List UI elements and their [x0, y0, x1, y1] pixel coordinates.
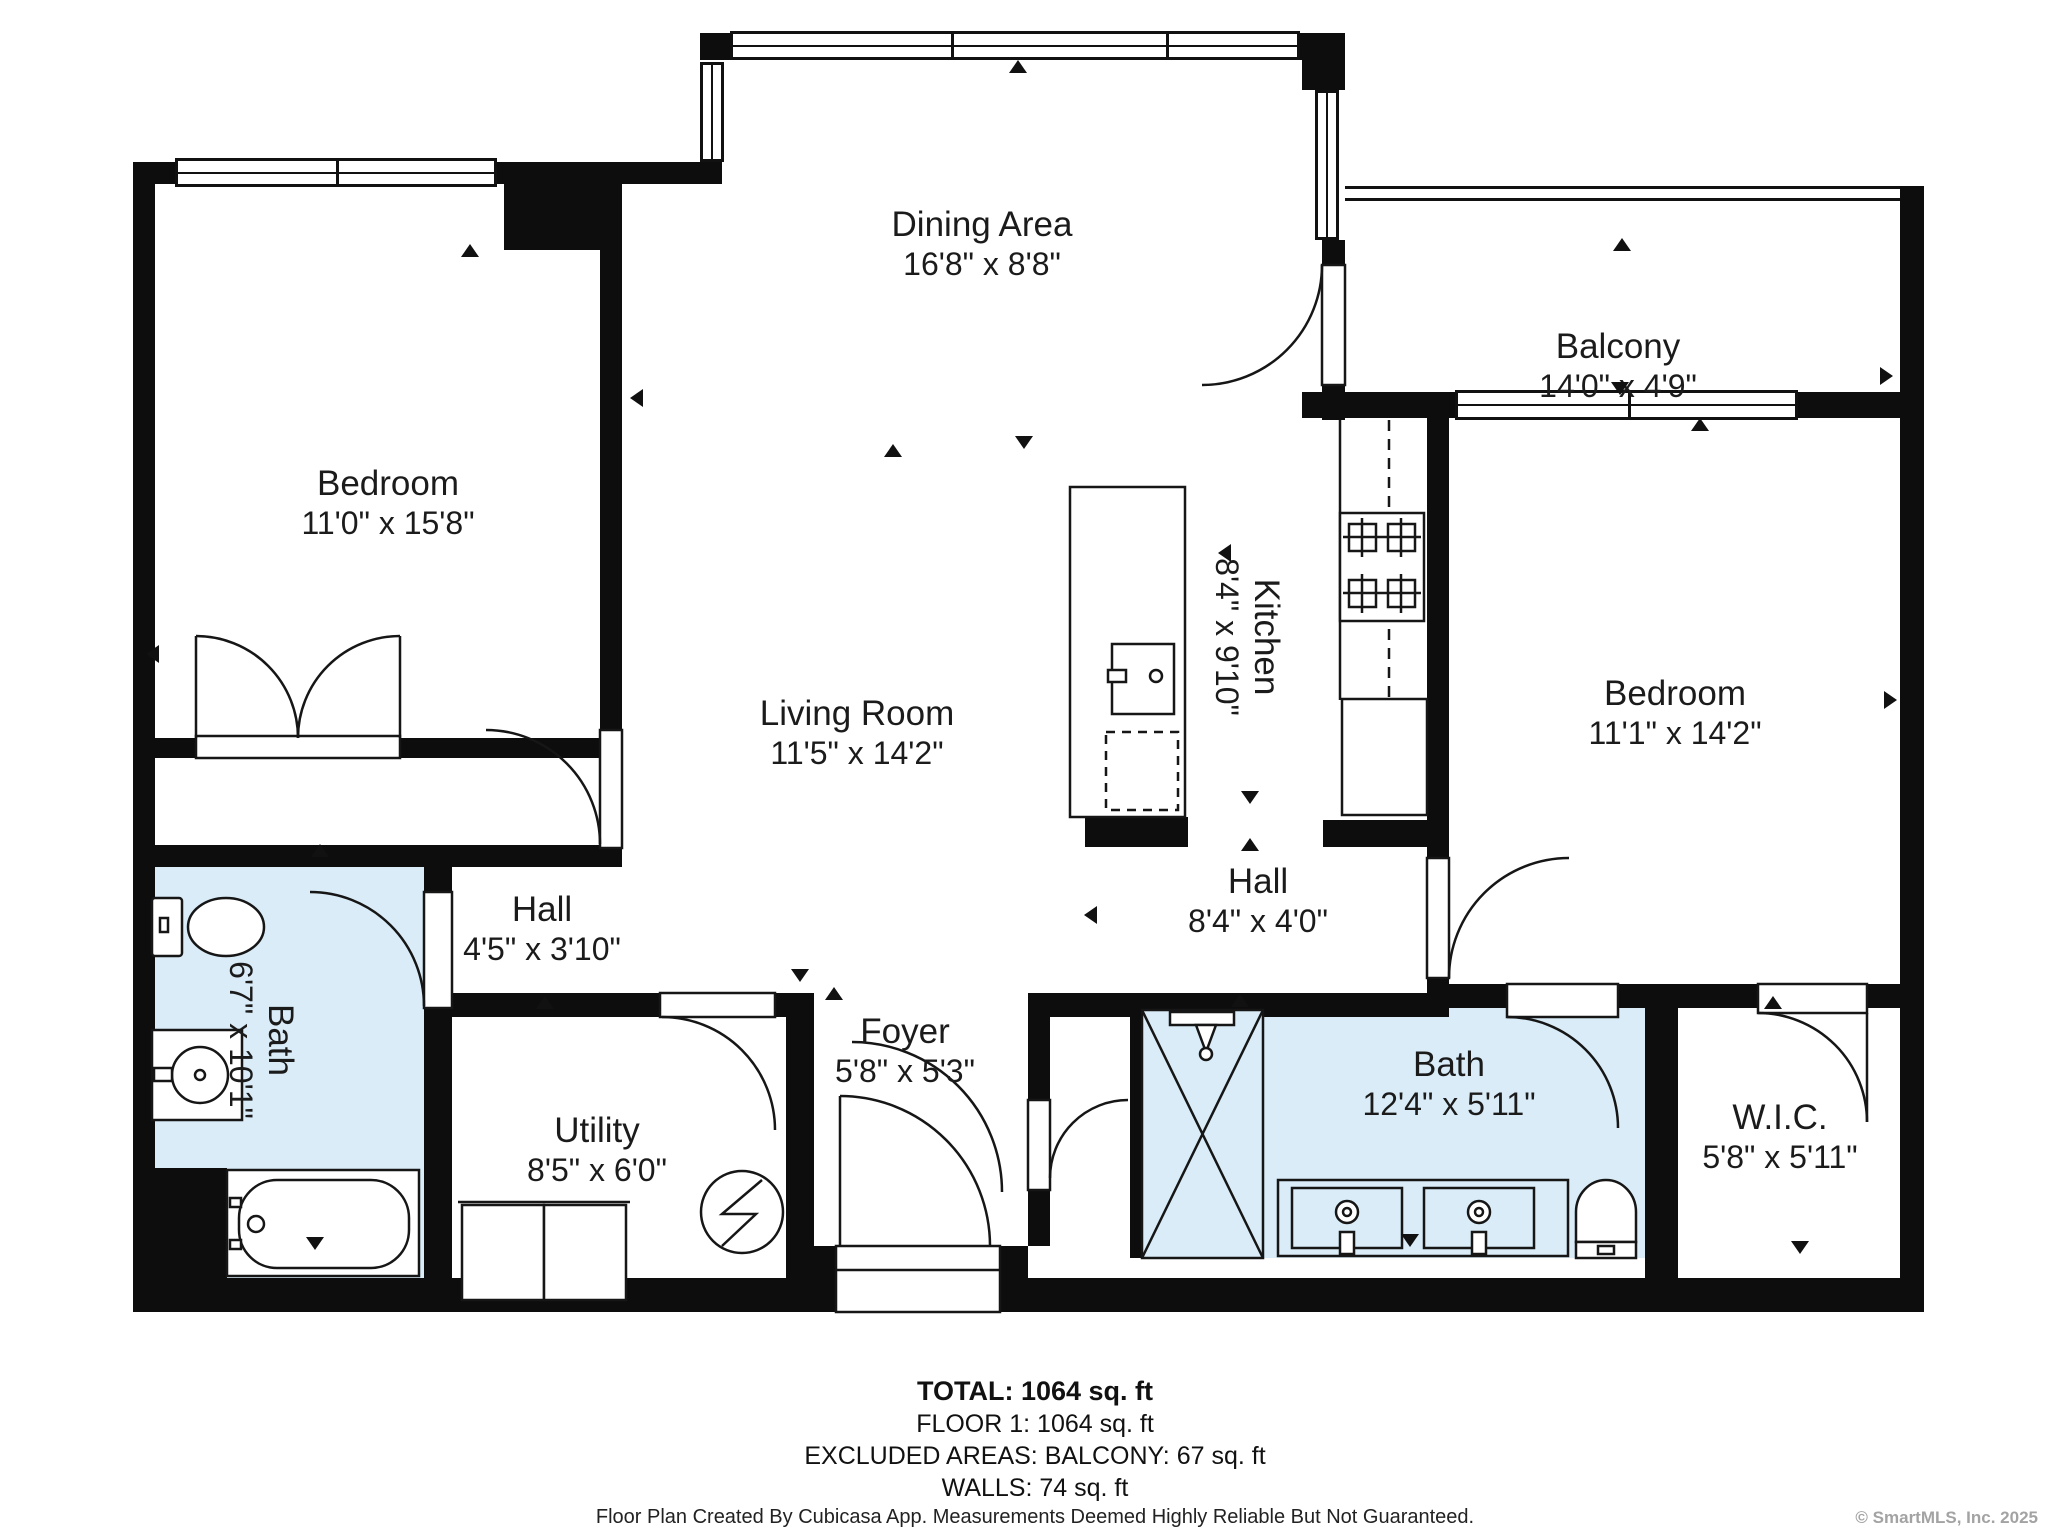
- direction-arrow-icon: [306, 1237, 324, 1250]
- room-dims: 5'8" x 5'3": [835, 1052, 975, 1090]
- room-dims: 6'7" x 10'1": [222, 961, 260, 1119]
- sink-drain-dot: [1475, 1208, 1483, 1216]
- room-dims: 16'8" x 8'8": [892, 245, 1073, 283]
- direction-arrow-icon: [1401, 1234, 1419, 1247]
- direction-arrow-icon: [1611, 382, 1629, 395]
- room-label-bedroom-left: Bedroom 11'0" x 15'8": [301, 464, 474, 542]
- toilet-icon: [1576, 1180, 1636, 1242]
- sink-faucet: [1340, 1232, 1354, 1254]
- island-drain: [1150, 670, 1162, 682]
- direction-arrow-icon: [1613, 238, 1631, 251]
- door-slab: [424, 892, 452, 1008]
- floor-area: FLOOR 1: 1064 sq. ft: [0, 1408, 2048, 1440]
- direction-arrow-icon: [1791, 1241, 1809, 1254]
- direction-arrow-icon: [536, 996, 554, 1009]
- copyright-text: © SmartMLS, Inc. 2025: [1855, 1508, 2038, 1528]
- room-label-utility: Utility 8'5" x 6'0": [527, 1111, 667, 1189]
- door-slab: [1507, 984, 1618, 1017]
- water-heater-icon: [701, 1171, 783, 1253]
- direction-arrow-icon: [1241, 791, 1259, 804]
- room-label-bedroom-right: Bedroom 11'1" x 14'2": [1588, 674, 1761, 752]
- direction-arrow-icon: [1084, 906, 1097, 924]
- direction-arrow-icon: [825, 987, 843, 1000]
- total-area: TOTAL: 1064 sq. ft: [0, 1374, 2048, 1408]
- room-name: Bedroom: [301, 464, 474, 504]
- tub-handle: [230, 1198, 241, 1207]
- direction-arrow-icon: [791, 969, 809, 982]
- direction-arrow-icon: [884, 444, 902, 457]
- door-arc: [1050, 1100, 1128, 1178]
- room-label-wic: W.I.C. 5'8" x 5'11": [1702, 1098, 1857, 1176]
- room-name: Bath: [260, 961, 300, 1119]
- room-label-kitchen: Kitchen 8'4" x 9'10": [1208, 558, 1286, 716]
- door-slab: [1427, 858, 1449, 978]
- shower-head-bar: [1170, 1012, 1234, 1025]
- room-name: Hall: [463, 890, 621, 930]
- toilet-icon: [188, 898, 264, 956]
- shower-head-dot: [1200, 1048, 1212, 1060]
- room-name: W.I.C.: [1702, 1098, 1857, 1138]
- room-name: Hall: [1188, 862, 1328, 902]
- direction-arrow-icon: [1009, 60, 1027, 73]
- direction-arrow-icon: [1764, 996, 1782, 1009]
- room-dims: 11'5" x 14'2": [760, 734, 955, 772]
- door-arc: [1202, 265, 1322, 385]
- disclaimer-text: Floor Plan Created By Cubicasa App. Meas…: [0, 1506, 2048, 1529]
- direction-arrow-icon: [1231, 994, 1249, 1007]
- room-name: Kitchen: [1246, 558, 1286, 716]
- room-dims: 5'8" x 5'11": [1702, 1138, 1857, 1176]
- sink-faucet: [154, 1068, 172, 1081]
- closet-sill: [196, 736, 400, 758]
- entry-threshold: [836, 1246, 1000, 1312]
- excluded-area: EXCLUDED AREAS: BALCONY: 67 sq. ft: [0, 1440, 2048, 1472]
- room-name: Foyer: [835, 1012, 975, 1052]
- room-label-hall-left: Hall 4'5" x 3'10": [463, 890, 621, 968]
- room-label-living-room: Living Room 11'5" x 14'2": [760, 694, 955, 772]
- door-arc: [1449, 858, 1569, 978]
- door-arc: [840, 1096, 990, 1246]
- toilet-button: [160, 918, 168, 932]
- direction-arrow-icon: [1880, 367, 1893, 385]
- door-slab: [1322, 265, 1345, 385]
- door-slab: [660, 993, 775, 1017]
- room-dims: 8'4" x 9'10": [1208, 558, 1246, 716]
- room-dims: 12'4" x 5'11": [1362, 1085, 1535, 1123]
- floor-plan: Bedroom 11'0" x 15'8" Dining Area 16'8" …: [0, 0, 2048, 1536]
- room-dims: 11'1" x 14'2": [1588, 714, 1761, 752]
- room-name: Utility: [527, 1111, 667, 1151]
- door-arc: [662, 1017, 775, 1130]
- sink-drain: [195, 1070, 205, 1080]
- direction-arrow-icon: [1884, 691, 1897, 709]
- room-name: Bedroom: [1588, 674, 1761, 714]
- washer-icon: [462, 1205, 544, 1300]
- walls-area: WALLS: 74 sq. ft: [0, 1472, 2048, 1504]
- direction-arrow-icon: [630, 389, 643, 407]
- sink-drain-dot: [1343, 1208, 1351, 1216]
- room-dims: 4'5" x 3'10": [463, 930, 621, 968]
- room-name: Living Room: [760, 694, 955, 734]
- door-arc: [196, 636, 298, 738]
- door-slab: [600, 730, 622, 848]
- sink-faucet: [1472, 1232, 1486, 1254]
- door-arc: [298, 636, 400, 738]
- room-label-foyer: Foyer 5'8" x 5'3": [835, 1012, 975, 1090]
- area-summary: TOTAL: 1064 sq. ft FLOOR 1: 1064 sq. ft …: [0, 1374, 2048, 1504]
- direction-arrow-icon: [1691, 418, 1709, 431]
- room-label-bath-left: Bath 6'7" x 10'1": [222, 961, 300, 1119]
- room-dims: 11'0" x 15'8": [301, 504, 474, 542]
- direction-arrow-icon: [1218, 544, 1231, 562]
- room-dims: 8'4" x 4'0": [1188, 902, 1328, 940]
- fridge-icon: [1342, 699, 1427, 815]
- room-label-dining-area: Dining Area 16'8" x 8'8": [892, 205, 1073, 283]
- direction-arrow-icon: [146, 645, 159, 663]
- room-name: Dining Area: [892, 205, 1073, 245]
- room-name: Balcony: [1539, 327, 1697, 367]
- room-dims: 8'5" x 6'0": [527, 1151, 667, 1189]
- toilet-button: [1598, 1246, 1614, 1254]
- tub-spout: [248, 1216, 264, 1232]
- direction-arrow-icon: [1241, 838, 1259, 851]
- room-name: Bath: [1362, 1045, 1535, 1085]
- door-arc: [486, 730, 600, 844]
- direction-arrow-icon: [311, 844, 329, 857]
- direction-arrow-icon: [1015, 436, 1033, 449]
- door-arc: [310, 892, 424, 1006]
- room-label-hall-right: Hall 8'4" x 4'0": [1188, 862, 1328, 940]
- tub-handle: [230, 1240, 241, 1249]
- island-faucet: [1108, 670, 1126, 682]
- door-slab: [1028, 1100, 1050, 1190]
- direction-arrow-icon: [461, 244, 479, 257]
- dryer-icon: [544, 1205, 626, 1300]
- room-label-bath-right: Bath 12'4" x 5'11": [1362, 1045, 1535, 1123]
